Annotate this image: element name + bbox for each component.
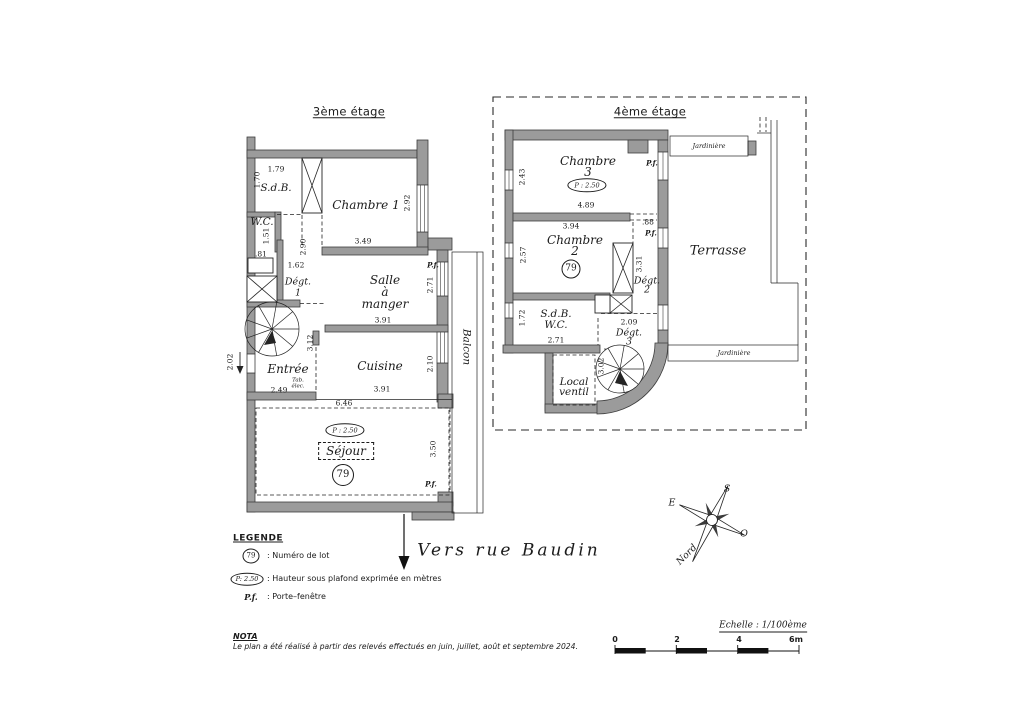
legend-title: LEGENDE: [233, 535, 283, 544]
floor4-lot-number-badge: 79: [562, 260, 581, 279]
floor3-room-label-degt1-line1: Dégt.: [285, 277, 311, 287]
floor4-dim-chambre3-height: 2.43: [518, 169, 526, 186]
scale-tick-2: 2: [674, 636, 680, 644]
legend-pf-text: : Porte–fenêtre: [267, 593, 326, 601]
floor3-title: 3ème étage: [313, 106, 385, 118]
floor3-dim-door-height: 2.02: [226, 354, 234, 371]
street-label: Vers rue Baudin: [417, 543, 600, 560]
plan-drawing: [0, 0, 1030, 728]
floor3-pf-top-label: P.f.: [427, 262, 439, 269]
floor4-room-label-degt2-line2: 2: [644, 285, 650, 295]
floor3-room-label-sdb: S.d.B.: [260, 183, 291, 194]
floor4-jardiniere-bottom-label: Jardinière: [718, 350, 751, 357]
floor3-lot-number-badge: 79: [332, 464, 354, 486]
floor3-dim-cuisine-width: 3.91: [374, 385, 391, 393]
floor3-room-label-salle-line3: manger: [362, 298, 409, 310]
floor4-dim-chambre2-top: 3.94: [563, 222, 580, 230]
floor3-dim-wc-width: .81: [255, 250, 267, 258]
scale-tick-6m: 6m: [789, 636, 803, 644]
floor3-room-label-degt1-line2: 1: [295, 288, 301, 298]
floor3-room-label-balcon: Balcon: [461, 329, 472, 365]
scale-tick-0: 0: [612, 636, 618, 644]
floor3-room-label-entree: Entrée: [267, 363, 308, 375]
compass-label-west: O: [740, 529, 748, 539]
floor3-dim-sdb-height: 1.70: [253, 172, 261, 189]
floorplan-sheet: 3ème étage S.d.B. 1.79 1.70 W.C. 1.51 .8…: [0, 0, 1030, 728]
floor4-title: 4ème étage: [614, 106, 686, 118]
floor3-tab-elec-label-line2: élec.: [291, 384, 304, 390]
floor4-room-label-sdbwc-line1: S.d.B.: [540, 309, 571, 320]
floor3-dim-sejour-height: 3.50: [429, 441, 437, 458]
floor4-pf-terrasse-label: P.f.: [645, 230, 657, 237]
legend-lot-symbol: 79: [243, 549, 260, 564]
floor3-dim-salle-height: 2.71: [426, 277, 434, 294]
scale-label: Echelle : 1/100ème: [719, 622, 807, 633]
floor4-room-label-chambre2-line2: 2: [571, 245, 579, 257]
floor4-pf-chambre3-label: P.f.: [646, 160, 658, 167]
floor3-dim-cuisine-height: 2.10: [426, 356, 434, 373]
floor4-room-label-local-line2: ventil: [559, 387, 589, 398]
floor3-dim-chambre1-height: 2.92: [403, 195, 411, 212]
floor3-room-label-cuisine: Cuisine: [357, 360, 403, 372]
nota-text: Le plan a été réalisé à partir des relev…: [233, 643, 578, 651]
floor3-dim-hall-height: 2.90: [299, 239, 307, 256]
floor3-dim-salle-width: 3.91: [375, 316, 392, 324]
floor3-room-label-sejour: Séjour: [318, 442, 374, 460]
floor4-dim-stair: 3.02: [597, 358, 605, 375]
floor3-dim-wc-height: 1.51: [262, 228, 270, 245]
floor3-entry-arrow-icon: [237, 352, 244, 374]
street-direction-arrow-icon: [399, 514, 410, 570]
floor4-terrace-outline: [668, 120, 798, 361]
floor3-dim-sdb-width: 1.79: [268, 165, 285, 173]
floor4-dim-sdbwc-width: 2.71: [548, 336, 565, 344]
compass-label-south: S: [724, 484, 731, 494]
floor4-dim-chambre3-width: 4.89: [578, 201, 595, 209]
floor4-dim-door-width: .88: [642, 218, 654, 226]
floor4-room-label-degt3-line2: 3: [626, 337, 632, 347]
floor3-dim-degt1-width: 1.62: [288, 261, 305, 269]
floor3-ceiling-height-badge: P : 2.50: [325, 423, 364, 437]
floor3-dim-entree-height: 3.12: [306, 335, 314, 352]
nota-title: NOTA: [233, 633, 258, 641]
floor4-dim-chambre2-height: 2.57: [519, 247, 527, 264]
floor3-dim-chambre1-width: 3.49: [355, 237, 372, 245]
floor4-room-label-chambre3-line2: 3: [584, 166, 592, 178]
floor4-dim-sdbwc-height: 1.72: [518, 310, 526, 327]
legend-lot-text: : Numéro de lot: [267, 552, 329, 560]
scale-bar: [615, 645, 799, 654]
floor3-pf-bottom-label: P.f.: [425, 481, 437, 488]
floor4-dim-degt2-height: 3.31: [635, 256, 643, 273]
legend-ceiling-symbol: P: 2.50: [231, 573, 264, 586]
legend-pf-symbol: P.f.: [244, 593, 257, 601]
floor4-room-label-terrasse: Terrasse: [690, 245, 747, 258]
floor4-room-label-sdbwc-line2: W.C.: [544, 320, 567, 331]
scale-tick-4: 4: [736, 636, 742, 644]
floor3-room-label-wc: W.C.: [250, 217, 273, 228]
floor3-dim-sejour-width: 6.46: [336, 399, 353, 407]
floor3-dim-entree-width: 2.49: [271, 386, 288, 394]
floor4-dim-degt3-width: 2.09: [621, 318, 638, 326]
floor4-jardiniere-top-label: Jardinière: [693, 143, 726, 150]
compass-label-east: E: [669, 498, 676, 508]
floor3-room-label-chambre1: Chambre 1: [332, 199, 399, 211]
legend-ceiling-text: : Hauteur sous plafond exprimée en mètre…: [267, 575, 442, 583]
floor4-ceiling-height-badge: P : 2.50: [567, 178, 606, 192]
